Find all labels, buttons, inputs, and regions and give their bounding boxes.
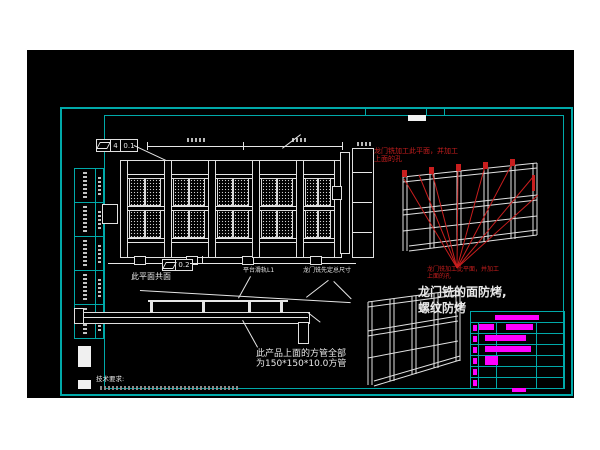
anti-bake-note: 龙门铣的面防烤, 螺纹防烤 [418,284,507,316]
table-row-mark [473,358,477,364]
plan-view-panel [261,210,277,238]
platform-beam-line [80,317,308,318]
table-row-line [471,344,564,345]
strip-cell-divider [95,237,96,270]
sheet-footer-text [512,388,526,392]
dimension-text [357,142,371,146]
platform-view [74,298,314,350]
coplanar-label: 此平面共面 [131,272,171,281]
table-row-bar [485,335,526,341]
plan-view-panel [233,178,249,206]
platform-post [280,300,283,312]
table-row-line [471,322,564,323]
margin-tick [365,108,366,115]
table-row-mark [473,336,477,342]
tech-req-text [100,386,240,390]
plan-view [116,152,352,266]
margin-white-cell [408,115,426,121]
plan-view-panel [277,210,293,238]
strip-cell-text [83,274,87,300]
plan-view-panel [173,210,189,238]
table-row-mark [473,369,477,375]
plan-view-panel [189,178,205,206]
table-row-line [471,377,564,378]
plan-view-panel [189,210,205,238]
flatness-icon [97,140,110,151]
page: 4 0.1 [0,0,600,450]
strip-cell-text [98,209,101,229]
platform-post [150,300,153,312]
plan-view-panel [129,178,145,206]
flatness-icon [163,260,175,270]
strip-cell-divider [95,203,96,236]
strip-cell-text [98,277,101,297]
revision-strip-row [74,202,104,237]
plan-view-panel [233,210,249,238]
revision-strip-row [74,168,104,203]
plan-view-panel [145,210,161,238]
plan-view-panel [261,178,277,206]
platform-post [202,300,205,312]
plan-view-rail [120,238,340,239]
gantry-size-label: 龙门铣先定总尺寸 [303,268,351,275]
plan-view-left-bracket [102,204,118,224]
side-view-line [352,172,372,173]
margin-tick [444,108,445,115]
flatness-frame-2: 0.2 [162,259,193,271]
dimension-tick [243,142,244,150]
side-view-line [352,232,372,233]
side-view-flange [352,148,374,258]
plan-view-foot [310,256,322,265]
table-row-mark [473,347,477,353]
anti-bake-note-line1: 龙门铣的面防烤, [418,284,507,300]
strip-cell-divider [95,169,96,202]
leader-line [190,263,202,264]
plan-view-panel [217,178,233,206]
plan-view-panel [217,210,233,238]
leader-line [202,256,203,264]
strip-cell-text [98,243,101,263]
table-row-bar [485,356,498,365]
strip-cell-text [98,175,101,195]
plan-view-rail [120,206,340,207]
revision-strip-white-box [78,380,91,389]
table-row-line [471,333,564,334]
plan-view-rail [120,174,340,175]
side-view-web [340,152,350,254]
anti-bake-note-line2: 螺纹防烤 [418,300,507,316]
red-note-top: 龙门铣加工此平面，并加工 上面的孔 [374,147,458,164]
dimension-tick [147,142,148,150]
plan-view-panel [305,178,318,206]
dimension-text [187,138,207,142]
plan-view-mullion [252,160,260,258]
square-tube-note: 此产品上面的方管全部 为150*150*10.0方管 [256,349,346,370]
table-row-bar [485,346,531,352]
strip-cell-text [83,206,87,232]
cad-canvas: 4 0.1 [27,50,574,398]
plan-view-panel [173,178,189,206]
table-row-mark [473,380,477,386]
margin-tick [426,108,427,115]
plan-view-mullion [120,160,128,258]
strip-cell-text [83,240,87,266]
red-note-top-line2: 上面的孔 [374,155,458,163]
revision-strip-row [74,236,104,271]
platform-beam [80,312,310,324]
iso-view-top [395,155,545,275]
tech-req-title: 技术要求: [96,376,124,383]
square-tube-note-line1: 此产品上面的方管全部 [256,349,346,359]
plan-view-panel [129,210,145,238]
table-row-bar [506,324,533,330]
side-view [340,148,380,260]
platform-post [248,300,251,312]
side-view-line [352,202,372,203]
plan-view-panel [305,210,318,238]
platform-left-step [74,308,84,324]
flatness-value: 0.2 [175,260,192,270]
platform-right-drop [298,322,309,344]
flatness-frame-1: 4 0.1 [96,139,138,152]
table-row-line [471,366,564,367]
plan-view-mullion [208,160,216,258]
platform-label: 平台滑轨L1 [243,268,274,275]
dimension-line [147,146,343,147]
plan-view-panel [318,178,331,206]
red-note-mid: 龙门铣加工此平面，并加工 上面的孔 [427,266,499,280]
platform-top-rail [148,300,288,302]
plan-view-panel [318,210,331,238]
plan-view-foot [134,256,146,265]
table-row-mark [473,325,477,331]
table-row-bar [479,324,494,330]
flatness-count: 4 [110,140,120,151]
red-note-mid-line2: 上面的孔 [427,273,499,280]
process-table [470,311,565,389]
plan-view-mullion [296,160,304,258]
square-tube-note-line2: 为150*150*10.0方管 [256,359,346,369]
side-view-tab [332,186,342,200]
plan-view-rail [120,242,340,243]
plan-view-panel [145,178,161,206]
plan-view-panel [277,178,293,206]
strip-cell-text [83,172,87,198]
plan-view-mullion [164,160,172,258]
